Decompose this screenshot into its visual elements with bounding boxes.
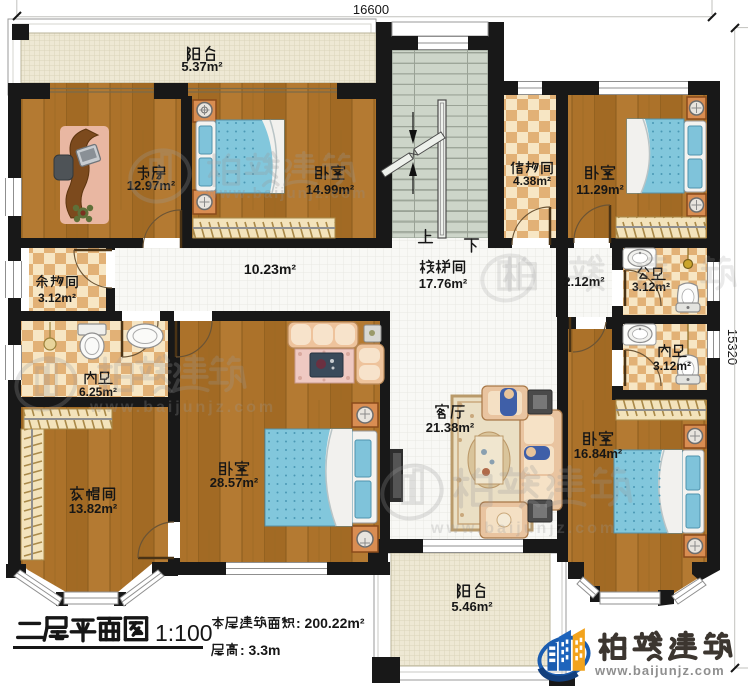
svg-text:: 3.3m: : 3.3m [240, 642, 280, 658]
svg-text:: 200.22m²: : 200.22m² [296, 615, 365, 631]
svg-text:5.37m²: 5.37m² [181, 59, 223, 74]
svg-text:1:100: 1:100 [155, 620, 213, 646]
svg-text:www.baijunjz.com: www.baijunjz.com [205, 185, 367, 202]
svg-text:28.57m²: 28.57m² [210, 475, 259, 490]
svg-text:16600: 16600 [353, 2, 389, 17]
svg-text:www.baijunjz.com: www.baijunjz.com [89, 399, 276, 416]
svg-text:17.76m²: 17.76m² [419, 276, 468, 291]
svg-text:5.46m²: 5.46m² [451, 599, 493, 614]
svg-text:www.baijunjz.com: www.baijunjz.com [594, 663, 725, 678]
svg-text:10.23m²: 10.23m² [244, 261, 296, 277]
svg-text:3.12m²: 3.12m² [653, 359, 691, 373]
svg-text:21.38m²: 21.38m² [426, 420, 475, 435]
svg-text:6.25m²: 6.25m² [79, 385, 117, 399]
svg-text:16.84m²: 16.84m² [574, 446, 623, 461]
svg-text:4.38m²: 4.38m² [513, 174, 551, 188]
svg-text:3.12m²: 3.12m² [38, 291, 76, 305]
svg-text:11.29m²: 11.29m² [576, 182, 624, 197]
svg-text:www.baijunjz.com: www.baijunjz.com [430, 520, 617, 537]
svg-text:15320: 15320 [725, 329, 740, 365]
svg-text:13.82m²: 13.82m² [69, 501, 118, 516]
